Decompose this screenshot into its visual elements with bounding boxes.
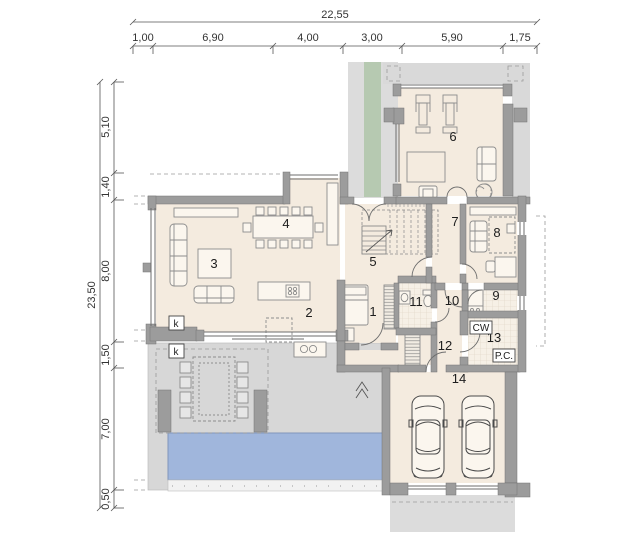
overhang-right-bracket (536, 216, 545, 346)
terrace-pillar-left (158, 390, 171, 432)
dim-top-seg-5: 1,75 (509, 32, 530, 44)
car-2 (459, 396, 497, 478)
pool-edge (168, 480, 386, 491)
dim-top-seg-2: 4,00 (297, 32, 318, 44)
sofa-horizontal (194, 286, 234, 303)
room-label-7: 7 (451, 214, 458, 229)
dim-left-seg-2: 8,00 (100, 260, 112, 281)
dim-top-seg-3: 3,00 (361, 32, 382, 44)
floor-plan-drawing: 1 2 3 4 5 6 7 8 9 10 11 12 13 14 k k CW … (0, 0, 638, 556)
room-label-8: 8 (493, 225, 500, 240)
dim-left-seg-4: 7,00 (100, 418, 112, 439)
window-room9-east (517, 296, 527, 310)
gym-terrace-band-right (512, 84, 530, 198)
armchair (419, 186, 437, 198)
room9-counter (468, 290, 483, 306)
room8-sideboard (470, 207, 516, 215)
wardrobe-room12 (405, 333, 420, 365)
room-label-6: 6 (449, 129, 456, 144)
room-label-11: 11 (409, 294, 423, 309)
room8-sofa (470, 221, 487, 252)
bed (342, 285, 368, 325)
swimming-pool (168, 433, 386, 480)
room-label-5: 5 (369, 254, 376, 269)
dimension-left: 23,50 5,10 1,40 8,00 1,50 7,00 0,50 (86, 79, 124, 511)
window-room8-east (517, 222, 527, 235)
dimension-left-ticks (111, 79, 124, 511)
kitchen-sink-counter (294, 342, 326, 357)
dimension-top-texts: 22,55 1,00 6,90 4,00 3,00 5,90 1,75 (132, 9, 530, 44)
car-1 (409, 396, 447, 478)
dim-top-seg-1: 6,90 (202, 32, 223, 44)
tall-cabinet (327, 183, 338, 245)
sofa-vertical (170, 224, 187, 286)
dim-left-seg-1: 1,40 (100, 176, 112, 197)
hot-water-label: CW (473, 323, 490, 334)
dim-top-seg-0: 1,00 (132, 32, 153, 44)
green-strip (364, 62, 381, 197)
room-label-4: 4 (282, 216, 289, 231)
window-living-west (151, 208, 155, 326)
driveway (390, 495, 515, 532)
terrace-pillar-right (254, 390, 267, 432)
room-label-14: 14 (452, 371, 466, 386)
dim-left-seg-5: 0,50 (100, 488, 112, 509)
room-label-9: 9 (492, 288, 499, 303)
room-label-1: 1 (369, 304, 376, 319)
room-label-12: 12 (438, 338, 452, 353)
dim-total-width: 22,55 (321, 9, 349, 21)
dim-total-height: 23,50 (86, 281, 98, 309)
dimension-left-texts: 23,50 5,10 1,40 8,00 1,50 7,00 0,50 (86, 116, 112, 509)
kitchen-island (258, 282, 310, 300)
dimension-top: 22,55 1,00 6,90 4,00 3,00 5,90 1,75 (130, 9, 540, 54)
sideboard (174, 208, 238, 217)
dimension-top-ticks (130, 43, 540, 54)
desk (495, 257, 516, 277)
dim-left-seg-0: 5,10 (100, 116, 112, 137)
boiler-label: P.C. (495, 351, 513, 362)
dim-top-seg-4: 5,90 (441, 32, 462, 44)
terrace-slider-door (204, 332, 336, 339)
desk-chair (486, 261, 495, 272)
wall-unit (507, 224, 515, 233)
floor-hall-12-west (345, 350, 398, 365)
cooktop (286, 285, 299, 297)
room-label-2: 2 (305, 305, 312, 320)
dim-left-seg-3: 1,50 (100, 344, 112, 365)
window-gym-north (401, 85, 503, 88)
floor-plan-page: 1 2 3 4 5 6 7 8 9 10 11 12 13 14 k k CW … (0, 0, 638, 556)
room-label-10: 10 (445, 293, 459, 308)
room-label-3: 3 (210, 256, 217, 271)
